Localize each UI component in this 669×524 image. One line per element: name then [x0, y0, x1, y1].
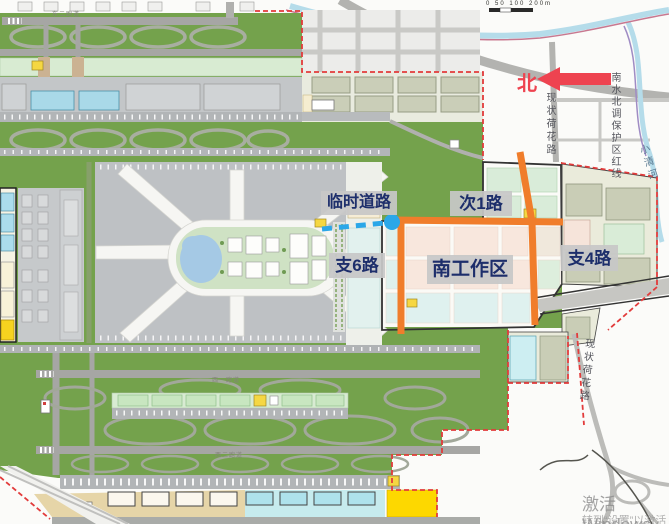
label-south-work-area: 南工作区: [427, 255, 513, 284]
south-stand-row: [60, 475, 400, 489]
label-zhi6-road: 支6路: [329, 253, 385, 278]
runway-label-south: 西二跑道: [215, 450, 243, 459]
ci1-road-line: [391, 220, 563, 222]
road-name-nanshui-beidiao: 南水北调保护区红线: [609, 72, 619, 180]
stand-row: [0, 112, 302, 122]
north-runway: [2, 17, 238, 25]
temp-road-endpoint-dot: [384, 214, 400, 230]
airport-plan-map: 临时道路 次1路 支6路 南工作区 支4路 北 0 50 100 200m 现状…: [0, 0, 669, 524]
road-name-hehua-north: 现状荷花路: [544, 92, 554, 157]
scale-bar-text: 0 50 100 200m: [486, 1, 552, 7]
control-tower: [41, 400, 50, 413]
cargo-building: [79, 91, 119, 110]
crossfield-road: [0, 148, 390, 156]
label-zhi4-road: 支4路: [561, 245, 618, 271]
label-temp-road: 临时道路: [321, 191, 397, 215]
north-street-grid: [302, 10, 480, 72]
windows-activation-watermark-line2: 转到“设置”以激活 Windows。: [582, 512, 669, 524]
south-runway-1: [36, 370, 480, 378]
label-ci1-road: 次1路: [450, 191, 512, 216]
south-runway-2: [36, 446, 480, 454]
scale-bar: [489, 8, 533, 12]
yellow-reserve-block: [387, 490, 437, 517]
north-label: 北: [517, 67, 537, 96]
runway-label-mid: 西一跑道: [212, 375, 240, 384]
runway-label-north: 东二跑道: [52, 9, 80, 18]
landside-pond: [180, 235, 222, 283]
cargo-building: [31, 91, 74, 110]
